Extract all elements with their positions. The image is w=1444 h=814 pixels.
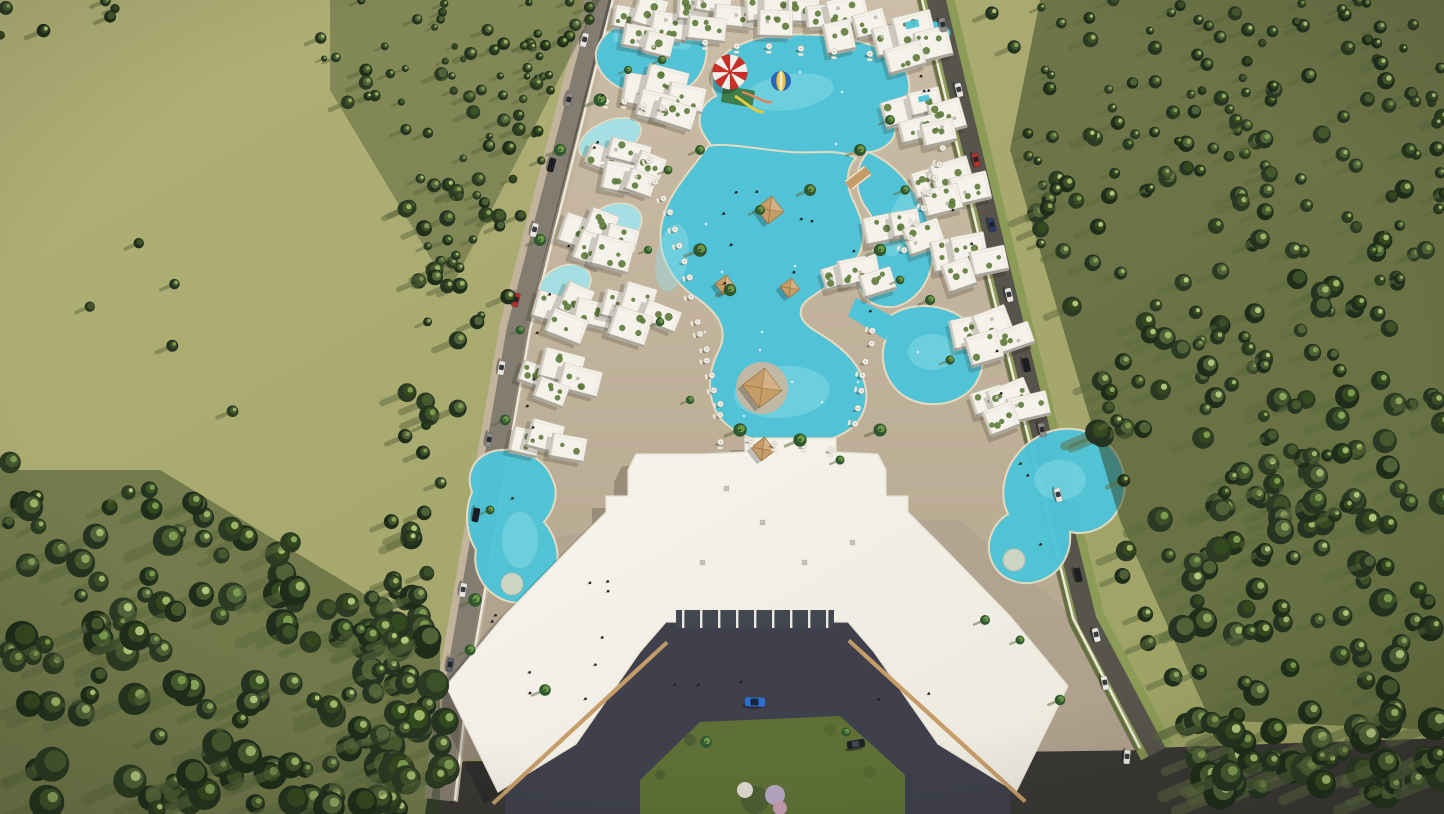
aerial-scene (0, 0, 1444, 814)
resort-aerial-render (0, 0, 1444, 814)
